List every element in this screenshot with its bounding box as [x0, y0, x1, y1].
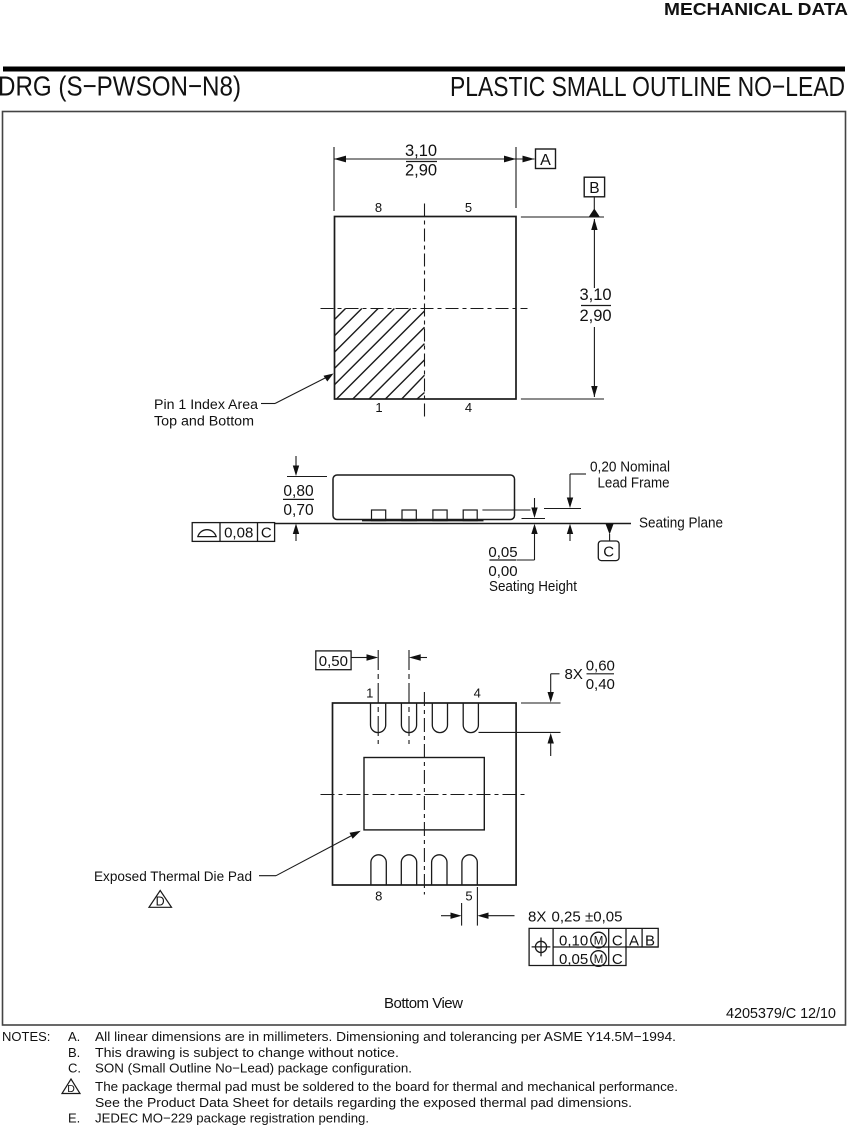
- svg-text:0,10: 0,10: [559, 933, 588, 950]
- svg-text:Exposed Thermal Die Pad: Exposed Thermal Die Pad: [94, 869, 252, 884]
- svg-text:Seating Height: Seating Height: [489, 578, 578, 595]
- svg-text:±0,05: ±0,05: [585, 909, 622, 926]
- svg-text:Bottom View: Bottom View: [384, 995, 463, 1012]
- svg-text:0,80: 0,80: [283, 483, 314, 500]
- svg-text:0,08: 0,08: [224, 525, 253, 542]
- svg-text:4: 4: [465, 400, 472, 415]
- svg-text:SON (Small Outline No−Lead) pa: SON (Small Outline No−Lead) package conf…: [95, 1061, 412, 1076]
- svg-text:Pin 1 Index Area: Pin 1 Index Area: [154, 397, 259, 412]
- svg-text:2,90: 2,90: [405, 162, 437, 180]
- svg-text:2,90: 2,90: [579, 307, 611, 325]
- svg-text:Lead Frame: Lead Frame: [598, 475, 670, 492]
- svg-text:The package thermal pad must b: The package thermal pad must be soldered…: [95, 1079, 678, 1094]
- svg-text:B.: B.: [68, 1045, 80, 1060]
- svg-text:0,60: 0,60: [586, 658, 615, 675]
- svg-text:3,10: 3,10: [579, 286, 611, 304]
- svg-text:0,25: 0,25: [552, 909, 581, 926]
- svg-text:M: M: [594, 954, 604, 966]
- svg-text:8: 8: [375, 200, 382, 215]
- svg-text:M: M: [594, 936, 604, 948]
- svg-text:C: C: [612, 951, 623, 968]
- svg-text:0,05: 0,05: [559, 951, 588, 968]
- svg-text:4: 4: [474, 686, 481, 701]
- svg-text:0,50: 0,50: [319, 653, 348, 670]
- svg-text:8X: 8X: [565, 666, 583, 683]
- svg-text:MECHANICAL DATA: MECHANICAL DATA: [664, 0, 848, 19]
- svg-text:C: C: [603, 544, 614, 561]
- svg-text:C: C: [261, 525, 272, 542]
- svg-text:4205379/C 12/10: 4205379/C 12/10: [726, 1006, 836, 1022]
- svg-text:JEDEC MO−229 package registrat: JEDEC MO−229 package registration pendin…: [95, 1111, 369, 1126]
- svg-text:3,10: 3,10: [405, 142, 437, 160]
- svg-text:Top and Bottom: Top and Bottom: [154, 414, 254, 429]
- svg-text:All linear dimensions are in m: All linear dimensions are in millimeters…: [95, 1029, 676, 1044]
- svg-text:B: B: [589, 180, 599, 197]
- svg-text:5: 5: [465, 200, 472, 215]
- svg-text:Seating Plane: Seating Plane: [639, 515, 723, 532]
- svg-text:PLASTIC SMALL OUTLINE NO−LEAD: PLASTIC SMALL OUTLINE NO−LEAD: [450, 71, 845, 102]
- svg-text:D: D: [67, 1083, 75, 1095]
- svg-text:See the Product Data Sheet for: See the Product Data Sheet for details r…: [95, 1095, 632, 1110]
- svg-text:This drawing is subject to cha: This drawing is subject to change withou…: [95, 1045, 399, 1060]
- svg-text:A.: A.: [68, 1029, 80, 1044]
- svg-text:0,40: 0,40: [586, 676, 615, 693]
- svg-text:5: 5: [465, 889, 472, 904]
- svg-text:C.: C.: [68, 1061, 81, 1076]
- svg-text:8X: 8X: [528, 909, 546, 926]
- svg-text:0,70: 0,70: [283, 502, 314, 519]
- svg-text:C: C: [612, 933, 623, 950]
- svg-text:B: B: [645, 933, 655, 950]
- svg-text:E.: E.: [68, 1111, 80, 1126]
- svg-text:0,20 Nominal: 0,20 Nominal: [590, 459, 670, 476]
- svg-text:0,05: 0,05: [488, 544, 517, 561]
- svg-text:8: 8: [375, 889, 382, 904]
- svg-text:1: 1: [375, 400, 382, 415]
- svg-text:DRG (S−PWSON−N8): DRG (S−PWSON−N8): [0, 71, 241, 102]
- svg-text:1: 1: [366, 686, 373, 701]
- svg-text:D: D: [156, 895, 165, 909]
- svg-text:A: A: [540, 152, 551, 169]
- svg-text:A: A: [629, 933, 639, 950]
- svg-text:NOTES:: NOTES:: [2, 1029, 50, 1044]
